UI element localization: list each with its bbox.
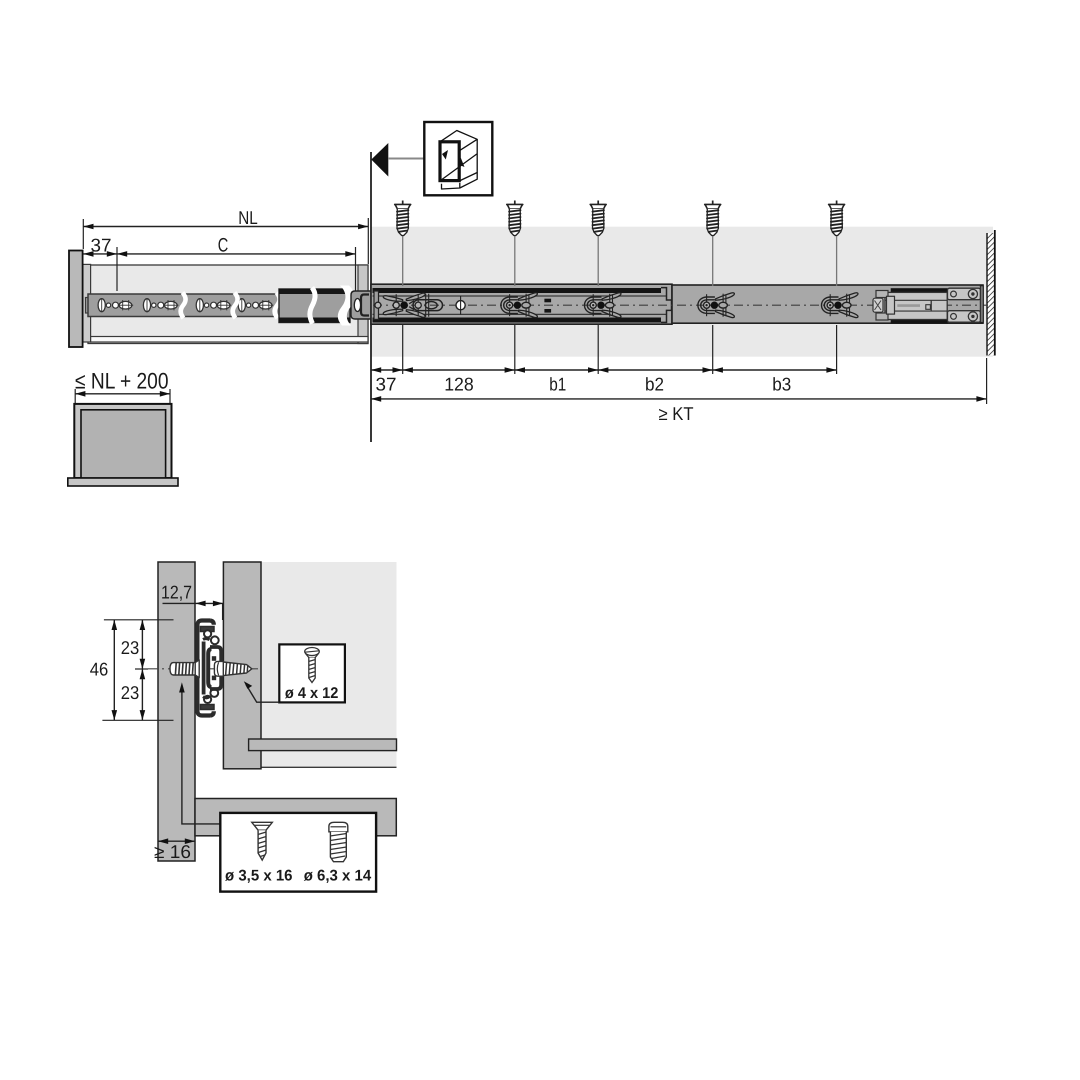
svg-text:b2: b2 bbox=[645, 374, 664, 395]
svg-text:NL: NL bbox=[238, 207, 258, 228]
svg-text:≥ 16: ≥ 16 bbox=[154, 841, 191, 862]
svg-text:37: 37 bbox=[91, 235, 112, 256]
svg-text:46: 46 bbox=[90, 659, 109, 680]
svg-text:≥ KT: ≥ KT bbox=[659, 403, 694, 424]
svg-text:37: 37 bbox=[376, 374, 397, 395]
svg-text:≤ NL + 200: ≤ NL + 200 bbox=[75, 369, 169, 394]
svg-text:b3: b3 bbox=[772, 374, 791, 395]
svg-text:ø 4 x 12: ø 4 x 12 bbox=[285, 685, 339, 702]
svg-text:12,7: 12,7 bbox=[161, 581, 192, 602]
svg-text:C: C bbox=[218, 235, 229, 257]
svg-text:128: 128 bbox=[444, 374, 474, 395]
svg-text:ø 3,5 x 16: ø 3,5 x 16 bbox=[225, 867, 293, 884]
svg-text:b1: b1 bbox=[549, 374, 566, 395]
svg-text:ø 6,3 x 14: ø 6,3 x 14 bbox=[304, 867, 372, 884]
svg-text:23: 23 bbox=[121, 682, 140, 703]
svg-text:23: 23 bbox=[121, 637, 140, 658]
